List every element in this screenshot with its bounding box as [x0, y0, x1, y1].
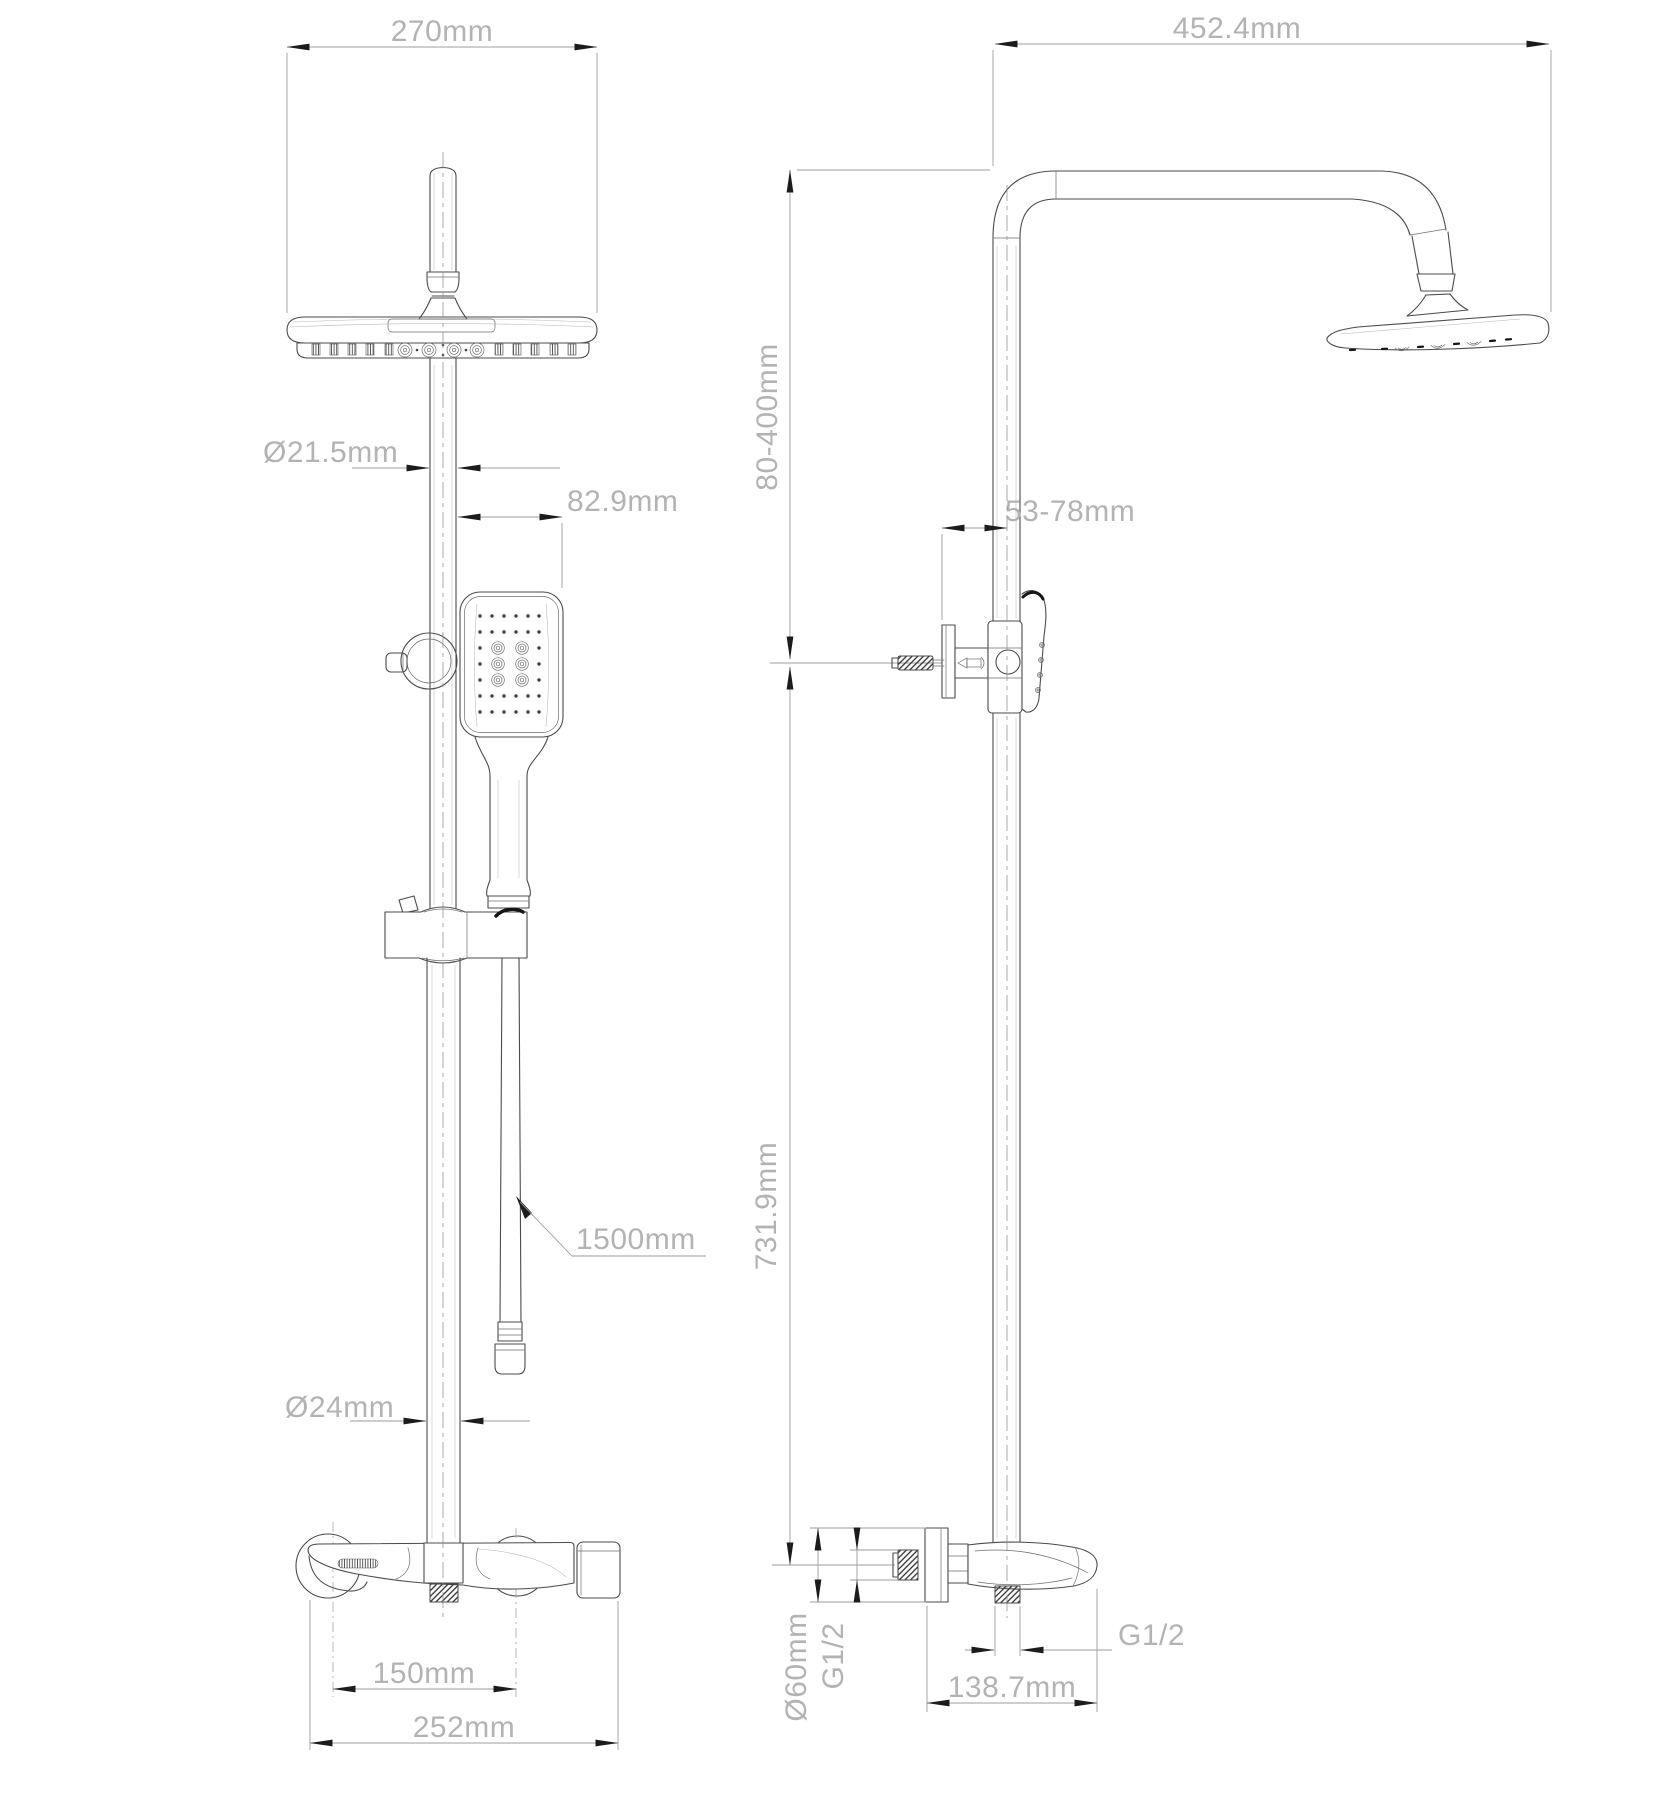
dim-handshower-offset: 82.9mm: [458, 485, 678, 588]
bracket-knob-side: [996, 650, 1020, 674]
bath-mixer-side: [893, 1528, 1097, 1603]
dim-spout-depth: 138.7mm: [927, 1589, 1097, 1712]
dim-252mm-label: 252mm: [413, 1711, 516, 1744]
dim-21-5mm-label: Ø21.5mm: [263, 436, 398, 469]
hand-shower-side: [1022, 591, 1046, 712]
dim-hose-length: 1500mm: [516, 1196, 706, 1256]
dim-head-width: 270mm: [287, 15, 597, 313]
bracket-wall-plate: [942, 625, 955, 698]
dim-g12-outlet-label: G1/2: [1118, 1619, 1185, 1652]
riser-pole-lower-front: [427, 958, 460, 1543]
dim-731-9mm-label: 731.9mm: [750, 1142, 783, 1271]
dim-270mm-label: 270mm: [391, 15, 494, 48]
dim-80-400mm-label: 80-400mm: [751, 343, 784, 490]
hand-shower-handle: [475, 737, 548, 908]
shower-arm-side: [993, 171, 1468, 316]
technical-drawing-page: 270mm Ø21.5mm 82.9mm: [0, 0, 1672, 1800]
dim-138-7mm-label: 138.7mm: [948, 1671, 1077, 1704]
overhead-shower-head-front: [287, 317, 597, 358]
mixer-shower-outlet-side: [995, 1586, 1020, 1603]
front-view: 270mm Ø21.5mm 82.9mm: [263, 15, 706, 1750]
hand-shower-front: [460, 592, 563, 908]
dim-arm-reach: 452.4mm: [993, 12, 1551, 312]
anchor-screw: [898, 656, 933, 670]
dim-wall-clearance: 53-78mm: [942, 495, 1135, 620]
mixer-handle-front: [577, 1542, 620, 1598]
wall-bracket-side: [892, 591, 1046, 713]
dim-60mm-label: Ø60mm: [780, 1612, 813, 1721]
dim-lower-height: 731.9mm: [750, 663, 956, 1565]
dim-53-78mm-label: 53-78mm: [1005, 495, 1135, 528]
dim-outlet-thread: G1/2: [965, 1606, 1185, 1656]
shower-hose: [495, 958, 525, 1374]
mixer-wall-flange-side: [925, 1528, 948, 1602]
dim-1500mm-label: 1500mm: [576, 1223, 696, 1256]
overhead-shower-head-side: [1327, 315, 1549, 351]
mixer-overflow-slot: [338, 1559, 378, 1568]
riser-pole-side: [993, 238, 1020, 1543]
mixer-inlet-nipple: [898, 1550, 918, 1580]
shower-system-drawing: 270mm Ø21.5mm 82.9mm: [0, 0, 1672, 1800]
dim-82-9mm-label: 82.9mm: [567, 485, 678, 518]
dim-150mm-label: 150mm: [373, 1657, 476, 1690]
dim-inlet-thread: G1/2: [817, 1528, 897, 1690]
hand-shower-nozzles: [478, 614, 540, 713]
dim-upper-height-range: 80-400mm: [751, 170, 990, 659]
dim-lower-pipe-diameter: Ø24mm: [285, 1391, 530, 1424]
dim-24mm-label: Ø24mm: [285, 1391, 394, 1424]
head-jet-nozzles: [398, 343, 484, 357]
dim-452-4mm-label: 452.4mm: [1173, 12, 1302, 45]
dim-inlet-spacing: 150mm: [333, 1657, 516, 1690]
mixer-body-side: [968, 1542, 1097, 1589]
dim-upper-pipe-diameter: Ø21.5mm: [263, 436, 560, 469]
dim-g12-inlet-label: G1/2: [817, 1622, 850, 1689]
mixer-shower-outlet-front: [430, 1584, 458, 1602]
wall-bracket-front: [386, 633, 457, 689]
mixer-column-socket: [424, 1543, 463, 1583]
side-view: 452.4mm 80-400mm 731.9mm: [750, 12, 1551, 1722]
